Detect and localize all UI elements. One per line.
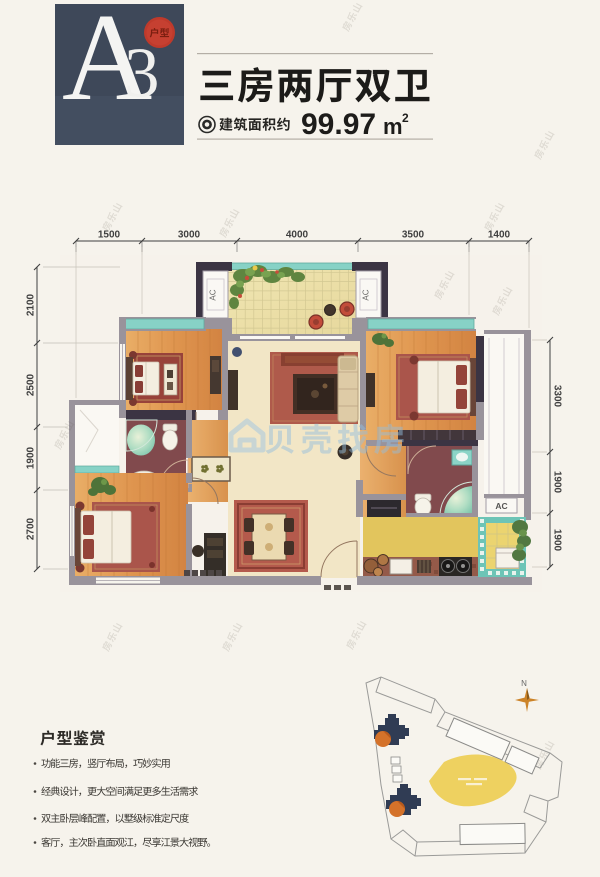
svg-text:2: 2 xyxy=(402,111,409,125)
svg-text:2700: 2700 xyxy=(26,517,37,540)
svg-text:3500: 3500 xyxy=(402,230,425,241)
svg-text:1900: 1900 xyxy=(552,471,563,494)
svg-text:N: N xyxy=(521,679,527,688)
svg-text:3000: 3000 xyxy=(178,230,201,241)
svg-text:4000: 4000 xyxy=(286,230,309,241)
svg-text:1900: 1900 xyxy=(26,446,37,469)
svg-text:2500: 2500 xyxy=(26,373,37,396)
svg-text:2100: 2100 xyxy=(26,293,37,316)
svg-text:3300: 3300 xyxy=(552,385,563,408)
svg-text:1900: 1900 xyxy=(552,529,563,552)
svg-text:99.97: 99.97 xyxy=(301,108,376,141)
svg-text:m: m xyxy=(383,114,403,139)
